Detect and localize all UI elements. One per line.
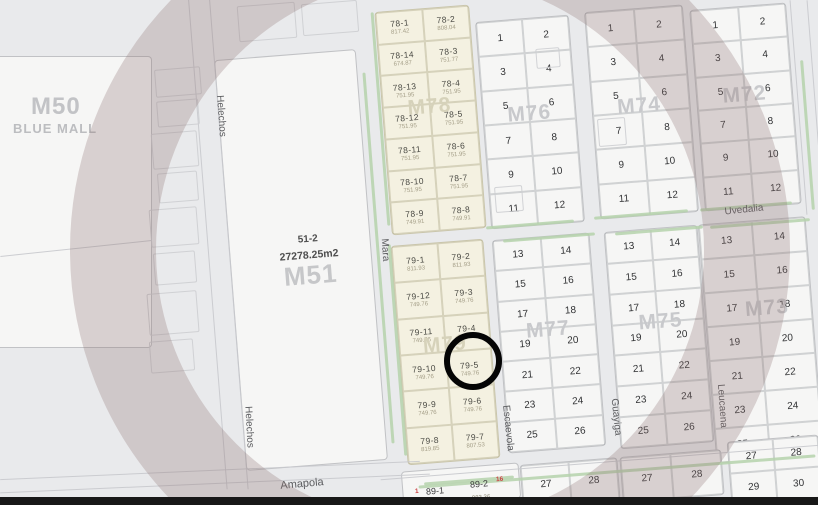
lot-m78-78-3[interactable]: 78-3751.77 bbox=[424, 37, 473, 72]
lot-label: 78-8 bbox=[451, 204, 470, 215]
block-m74: 123456789101112M74 bbox=[584, 4, 699, 219]
lot-area: 749.76 bbox=[458, 334, 477, 341]
lot-number: 1 bbox=[607, 23, 613, 34]
lot-m75-17[interactable]: 17 bbox=[610, 291, 658, 325]
building-footprint bbox=[146, 290, 199, 336]
lot-m75-22[interactable]: 22 bbox=[660, 349, 708, 383]
building-footprint bbox=[157, 170, 199, 203]
lot-m73-17[interactable]: 17 bbox=[704, 289, 760, 327]
lot-number: 16 bbox=[776, 264, 788, 276]
lot-m72-8[interactable]: 8 bbox=[745, 103, 795, 140]
lot-m78-78-2[interactable]: 78-2808.04 bbox=[422, 6, 471, 41]
lot-number: 12 bbox=[666, 190, 678, 202]
street-label-amapola: Amapola bbox=[280, 476, 324, 492]
block-m78: 78-1817.4278-2808.0478-14674.8778-3751.7… bbox=[374, 5, 486, 236]
lot-label: 78-5 bbox=[444, 109, 463, 120]
lot-number: 20 bbox=[781, 332, 793, 344]
building-footprint bbox=[151, 130, 200, 169]
lot-m75-26[interactable]: 26 bbox=[665, 410, 713, 444]
lot-m74-6[interactable]: 6 bbox=[639, 74, 690, 112]
lot-area: 749.76 bbox=[418, 410, 437, 417]
block-m73: 1314151617181920212223242526M73 bbox=[698, 216, 818, 464]
lot-number: 17 bbox=[517, 309, 529, 321]
lot-m78-78-7[interactable]: 78-7751.95 bbox=[434, 164, 483, 199]
lot-m75-16[interactable]: 16 bbox=[653, 256, 701, 290]
lot-area: 811.93 bbox=[452, 261, 470, 268]
lot-m79-79-9[interactable]: 79-9749.76 bbox=[403, 388, 451, 428]
lot-number: 5 bbox=[717, 87, 723, 98]
lot-m72-3[interactable]: 3 bbox=[693, 41, 743, 78]
lot-89-1-label[interactable]: 89-1 bbox=[426, 485, 445, 497]
block-grid-b75s: 2728 bbox=[620, 450, 723, 502]
lot-m76-7[interactable]: 7 bbox=[484, 122, 533, 160]
lot-m72-2[interactable]: 2 bbox=[738, 4, 788, 41]
block-grid-m72: 123456789101112 bbox=[690, 4, 800, 211]
lot-number: 4 bbox=[658, 53, 664, 64]
lot-number: 8 bbox=[664, 121, 670, 132]
lot-number: 2 bbox=[759, 16, 765, 27]
lot-m73-16[interactable]: 16 bbox=[754, 251, 810, 289]
lot-m76-5[interactable]: 5 bbox=[481, 88, 530, 126]
lot-number: 22 bbox=[569, 365, 581, 377]
lot-label: 78-4 bbox=[441, 77, 460, 88]
lot-number: 7 bbox=[505, 135, 511, 146]
lot-number: 9 bbox=[508, 169, 514, 180]
lot-area: 751.95 bbox=[450, 183, 469, 190]
lot-m78-78-11[interactable]: 78-11751.95 bbox=[385, 136, 434, 171]
lot-number: 10 bbox=[551, 166, 563, 178]
lot-number: 4 bbox=[762, 50, 768, 61]
lot-area: 674.87 bbox=[393, 60, 412, 67]
lot-number: 22 bbox=[784, 366, 796, 378]
lot-area: 751.95 bbox=[445, 120, 464, 127]
lot-number: 25 bbox=[637, 425, 649, 437]
lot-number: 23 bbox=[635, 394, 647, 406]
lot-m75-21[interactable]: 21 bbox=[614, 352, 662, 386]
lot-number: 9 bbox=[723, 153, 729, 164]
building-footprint bbox=[597, 117, 627, 147]
lot-number: 1 bbox=[712, 20, 718, 31]
lot-number: 5 bbox=[503, 101, 509, 112]
lot-m77-13[interactable]: 13 bbox=[493, 237, 543, 271]
building-footprint bbox=[153, 250, 197, 285]
lot-m74-1[interactable]: 1 bbox=[585, 9, 636, 47]
lot-area: 751.95 bbox=[403, 187, 422, 194]
lot-number: 2 bbox=[543, 29, 549, 40]
lot-label: 79-1 bbox=[406, 254, 425, 265]
lot-m74-2[interactable]: 2 bbox=[633, 6, 684, 44]
lot-m73-18[interactable]: 18 bbox=[757, 285, 813, 323]
street-label-helechos-south: Helechos bbox=[242, 406, 255, 448]
lot-number: 26 bbox=[574, 426, 586, 438]
lot-m78-78-10[interactable]: 78-10751.95 bbox=[388, 167, 437, 202]
lot-number: 20 bbox=[676, 329, 688, 341]
lot-m74-9[interactable]: 9 bbox=[596, 146, 647, 184]
block-grid-m78: 78-1817.4278-2808.0478-14674.8778-3751.7… bbox=[375, 6, 485, 235]
lot-area: 807.53 bbox=[466, 443, 485, 450]
lot-label: 79-8 bbox=[420, 435, 439, 446]
lot-area: 751.95 bbox=[398, 124, 417, 131]
lot-number: 3 bbox=[715, 53, 721, 64]
lot-number: 14 bbox=[669, 237, 681, 249]
lot-m79-79-6[interactable]: 79-6749.76 bbox=[448, 385, 496, 425]
lot-number: 28 bbox=[691, 468, 703, 480]
lot-number: 19 bbox=[519, 339, 531, 351]
lot-m72-7[interactable]: 7 bbox=[698, 107, 748, 144]
lot-area: 749.76 bbox=[463, 406, 482, 413]
lot-m78-78-1[interactable]: 78-1817.42 bbox=[375, 9, 424, 44]
lot-m78-78-4[interactable]: 78-4751.95 bbox=[427, 69, 476, 104]
lot-m74-4[interactable]: 4 bbox=[636, 40, 687, 78]
lot-number: 15 bbox=[723, 268, 735, 280]
lot-m79-79-10[interactable]: 79-10749.76 bbox=[400, 352, 448, 392]
lot-area: 751.95 bbox=[442, 88, 461, 95]
lot-number: 2 bbox=[656, 19, 662, 30]
lot-number: 25 bbox=[526, 430, 538, 442]
lot-m73-20[interactable]: 20 bbox=[760, 319, 816, 357]
lot-m72-5[interactable]: 5 bbox=[696, 74, 746, 111]
lot-m75-19[interactable]: 19 bbox=[612, 322, 660, 356]
lot-m74-10[interactable]: 10 bbox=[644, 142, 695, 180]
lot-label: 78-13 bbox=[392, 81, 416, 93]
lot-m75-20[interactable]: 20 bbox=[658, 318, 706, 352]
lot-number: 1 bbox=[497, 33, 503, 44]
lot-m77-26[interactable]: 26 bbox=[555, 415, 605, 449]
lot-m79-79-7[interactable]: 79-7807.53 bbox=[451, 421, 499, 461]
lot-m76-12[interactable]: 12 bbox=[535, 187, 584, 225]
lot-label: 78-12 bbox=[395, 112, 419, 124]
lot-m72-6[interactable]: 6 bbox=[743, 70, 793, 107]
lot-label: 79-3 bbox=[454, 287, 473, 298]
block-label-m50: M50 bbox=[31, 93, 81, 121]
lot-m77-24[interactable]: 24 bbox=[553, 385, 603, 419]
lot-m73-24[interactable]: 24 bbox=[765, 387, 818, 425]
lot-m72-4[interactable]: 4 bbox=[740, 37, 790, 74]
lot-area: 749.76 bbox=[461, 370, 480, 377]
lot-label: 78-7 bbox=[449, 172, 468, 183]
block-grid-m79: 79-1811.9379-2811.9379-12749.7679-3749.7… bbox=[392, 240, 500, 464]
lot-label: 79-5 bbox=[460, 359, 479, 370]
lot-m74-5[interactable]: 5 bbox=[590, 78, 641, 116]
lot-label: 79-7 bbox=[465, 432, 484, 443]
lot-number: 27 bbox=[540, 478, 552, 490]
block-m50: M50BLUE MALL bbox=[0, 56, 152, 348]
lot-area: 749.76 bbox=[455, 298, 474, 305]
block-m76: 123456789101112M76 bbox=[475, 15, 585, 230]
lot-m77-16[interactable]: 16 bbox=[543, 264, 593, 298]
lot-m75-15[interactable]: 15 bbox=[607, 260, 655, 294]
lot-number: 6 bbox=[765, 83, 771, 94]
lot-label: 78-9 bbox=[405, 207, 424, 218]
lot-m78-78-14[interactable]: 78-14674.87 bbox=[378, 41, 427, 76]
lot-label: 79-10 bbox=[412, 362, 436, 374]
lot-m79-79-5[interactable]: 79-5749.76 bbox=[445, 348, 493, 388]
lot-label: 79-11 bbox=[409, 326, 433, 338]
lot-m75-13[interactable]: 13 bbox=[605, 229, 653, 263]
lot-area: 751.95 bbox=[396, 92, 415, 99]
lot-number: 12 bbox=[554, 200, 566, 212]
lot-number: 20 bbox=[567, 335, 579, 347]
building-footprint bbox=[156, 98, 200, 127]
cadastral-map: M50BLUE MALLM5151-227278.25m278-1817.427… bbox=[0, 0, 818, 505]
lot-m77-20[interactable]: 20 bbox=[548, 324, 598, 358]
lot-m78-78-12[interactable]: 78-12751.95 bbox=[383, 104, 432, 139]
lot-number: 22 bbox=[678, 360, 690, 372]
block-grid-m73: 1314151617181920212223242526 bbox=[699, 217, 818, 463]
lot-m77-21[interactable]: 21 bbox=[502, 358, 552, 392]
lot-b73s-27[interactable]: 27 bbox=[728, 439, 775, 473]
lot-m78-78-13[interactable]: 78-13751.95 bbox=[380, 73, 429, 108]
lot-m79-79-12[interactable]: 79-12749.76 bbox=[394, 280, 442, 320]
lot-number: 17 bbox=[726, 302, 738, 314]
lot-area: 811.93 bbox=[407, 265, 425, 272]
lot-label: 79-2 bbox=[451, 250, 470, 261]
lot-number: 14 bbox=[773, 230, 785, 242]
block-m72: 123456789101112M72 bbox=[689, 3, 802, 212]
lot-label: 78-2 bbox=[436, 14, 455, 25]
lot-area: 817.42 bbox=[391, 29, 410, 36]
lot-area: 819.85 bbox=[421, 446, 440, 453]
lot-m74-3[interactable]: 3 bbox=[588, 44, 639, 82]
lot-m78-78-5[interactable]: 78-5751.95 bbox=[429, 101, 478, 136]
building-footprint bbox=[149, 338, 195, 373]
lot-area: 749.76 bbox=[412, 337, 431, 344]
lot-m79-79-4[interactable]: 79-4749.76 bbox=[443, 312, 491, 352]
lot-number: 10 bbox=[767, 149, 779, 161]
lot-number: 23 bbox=[524, 399, 536, 411]
lot-number: 7 bbox=[720, 120, 726, 131]
lot-m75-25[interactable]: 25 bbox=[619, 414, 667, 448]
lot-m78-78-6[interactable]: 78-6751.95 bbox=[432, 132, 481, 167]
lot-number: 6 bbox=[548, 97, 554, 108]
lot-number: 24 bbox=[681, 391, 693, 403]
lot-b73s-28[interactable]: 28 bbox=[773, 436, 818, 470]
building-footprint bbox=[154, 66, 202, 98]
lot-m72-9[interactable]: 9 bbox=[701, 140, 751, 177]
lot-m76-8[interactable]: 8 bbox=[530, 118, 579, 156]
lot-number: 18 bbox=[674, 298, 686, 310]
lot-number: 9 bbox=[618, 160, 624, 171]
lot-number: 13 bbox=[721, 234, 733, 246]
lot-m72-1[interactable]: 1 bbox=[690, 7, 740, 44]
lot-b75s-27[interactable]: 27 bbox=[620, 454, 673, 502]
lot-m77-19[interactable]: 19 bbox=[500, 328, 550, 362]
building-footprint bbox=[237, 2, 298, 42]
lot-area: 808.04 bbox=[437, 25, 456, 32]
lot-m72-10[interactable]: 10 bbox=[748, 136, 798, 173]
block-grid-m74: 123456789101112 bbox=[585, 6, 698, 219]
lot-label: 78-1 bbox=[390, 18, 409, 29]
lot-label: 79-4 bbox=[457, 323, 476, 334]
lot-m74-8[interactable]: 8 bbox=[641, 108, 692, 146]
lot-m73-19[interactable]: 19 bbox=[707, 323, 763, 361]
block-m79: 79-1811.9379-2811.9379-12749.7679-3749.7… bbox=[391, 239, 501, 466]
lot-number: 29 bbox=[748, 481, 760, 493]
lot-number: 16 bbox=[562, 275, 574, 287]
lot-number: 18 bbox=[779, 298, 791, 310]
lot-m76-6[interactable]: 6 bbox=[527, 84, 576, 122]
lot-number: 21 bbox=[731, 370, 743, 382]
lot-m73-22[interactable]: 22 bbox=[762, 353, 818, 391]
lot-number: 17 bbox=[628, 302, 640, 314]
lot-number: 3 bbox=[610, 57, 616, 68]
lot-number: 11 bbox=[618, 194, 629, 206]
lot-number: 8 bbox=[767, 116, 773, 127]
building-footprint bbox=[149, 206, 200, 248]
lot-b75s-28[interactable]: 28 bbox=[670, 450, 723, 498]
lot-area: 751.95 bbox=[447, 152, 466, 159]
lot-number: 24 bbox=[787, 400, 799, 412]
block-grid-m76: 123456789101112 bbox=[476, 16, 584, 229]
lot-m79-79-2[interactable]: 79-2811.93 bbox=[437, 240, 485, 280]
lot-number: 13 bbox=[512, 248, 524, 260]
lot-area: 751.77 bbox=[440, 57, 459, 64]
building-footprint bbox=[535, 47, 560, 69]
lot-m78-78-8[interactable]: 78-8749.91 bbox=[437, 195, 486, 230]
lot-number: 15 bbox=[514, 279, 526, 291]
block-m51: M5151-227278.25m2 bbox=[214, 49, 388, 471]
lot-area: 749.76 bbox=[410, 301, 429, 308]
lot-m72-12[interactable]: 12 bbox=[751, 170, 801, 207]
lot-number: 14 bbox=[560, 245, 572, 257]
lot-number: 21 bbox=[521, 369, 533, 381]
lot-number: 19 bbox=[729, 336, 741, 348]
lot-area: 749.91 bbox=[452, 215, 471, 222]
lot-89-2-label[interactable]: 89-2 bbox=[470, 478, 489, 490]
lot-number: 12 bbox=[770, 182, 782, 194]
lot-number: 10 bbox=[664, 156, 676, 168]
lot-area: 751.95 bbox=[401, 155, 420, 162]
lot-label: 79-12 bbox=[406, 290, 430, 302]
lot-label: 78-11 bbox=[398, 144, 422, 156]
lot-m76-10[interactable]: 10 bbox=[533, 153, 582, 191]
lot-m79-79-3[interactable]: 79-3749.76 bbox=[440, 276, 488, 316]
lot-number: 23 bbox=[734, 404, 746, 416]
lot-m77-17[interactable]: 17 bbox=[498, 298, 548, 332]
lot-number: 21 bbox=[633, 364, 645, 376]
lot-m75-18[interactable]: 18 bbox=[655, 287, 703, 321]
lot-m76-3[interactable]: 3 bbox=[479, 54, 528, 92]
lot-number: 26 bbox=[683, 422, 695, 434]
bottom-black-bar bbox=[0, 497, 818, 505]
block-sublabel-m50: BLUE MALL bbox=[13, 121, 97, 136]
lot-number: 8 bbox=[551, 132, 557, 143]
lot-m79-79-8[interactable]: 79-8819.85 bbox=[406, 424, 454, 464]
lot-number: 24 bbox=[572, 396, 584, 408]
lot-number: 30 bbox=[793, 478, 805, 490]
lot-number: 19 bbox=[630, 333, 642, 345]
lot-number: 13 bbox=[623, 241, 635, 253]
lot-number: 11 bbox=[723, 186, 734, 198]
lot-number: 15 bbox=[625, 271, 637, 283]
lot-number: 18 bbox=[565, 305, 577, 317]
lot-number: 16 bbox=[671, 268, 683, 280]
building-footprint bbox=[301, 0, 359, 36]
red-marker-16: 16 bbox=[496, 476, 504, 484]
lot-m77-15[interactable]: 15 bbox=[495, 268, 545, 302]
parcel-area: 27278.25m2 bbox=[279, 247, 339, 264]
lot-label: 78-6 bbox=[446, 141, 465, 152]
block-label-m51: M51 bbox=[283, 258, 339, 293]
lot-number: 6 bbox=[661, 87, 667, 98]
lot-label: 78-3 bbox=[439, 46, 458, 57]
lot-b73s-30[interactable]: 30 bbox=[775, 466, 818, 500]
building-footprint bbox=[494, 185, 524, 213]
lot-area: 749.91 bbox=[406, 218, 425, 225]
lot-number: 5 bbox=[613, 91, 619, 102]
lot-number: 27 bbox=[641, 472, 653, 484]
lot-label: 79-9 bbox=[417, 399, 436, 410]
lot-label: 78-14 bbox=[390, 49, 414, 61]
lot-label: 79-6 bbox=[463, 395, 482, 406]
red-marker-1: 1 bbox=[415, 488, 419, 495]
lot-area: 749.76 bbox=[415, 374, 434, 381]
lot-m79-79-11[interactable]: 79-11749.76 bbox=[397, 316, 445, 356]
street-label-mara: Mara bbox=[379, 238, 392, 262]
parcel-code: 51-2 bbox=[297, 233, 318, 246]
lot-m77-22[interactable]: 22 bbox=[550, 354, 600, 388]
lot-m75-24[interactable]: 24 bbox=[663, 380, 711, 414]
lot-m74-12[interactable]: 12 bbox=[647, 177, 698, 215]
lot-m77-18[interactable]: 18 bbox=[545, 294, 595, 328]
lot-number: 3 bbox=[500, 67, 506, 78]
lot-m78-78-9[interactable]: 78-9749.91 bbox=[390, 199, 439, 234]
lot-m76-1[interactable]: 1 bbox=[476, 19, 525, 57]
lot-label: 78-10 bbox=[400, 176, 424, 188]
lot-m73-15[interactable]: 15 bbox=[701, 255, 757, 293]
lot-m79-79-1[interactable]: 79-1811.93 bbox=[392, 243, 440, 283]
lot-number: 28 bbox=[588, 474, 600, 486]
lot-m75-23[interactable]: 23 bbox=[617, 383, 665, 417]
